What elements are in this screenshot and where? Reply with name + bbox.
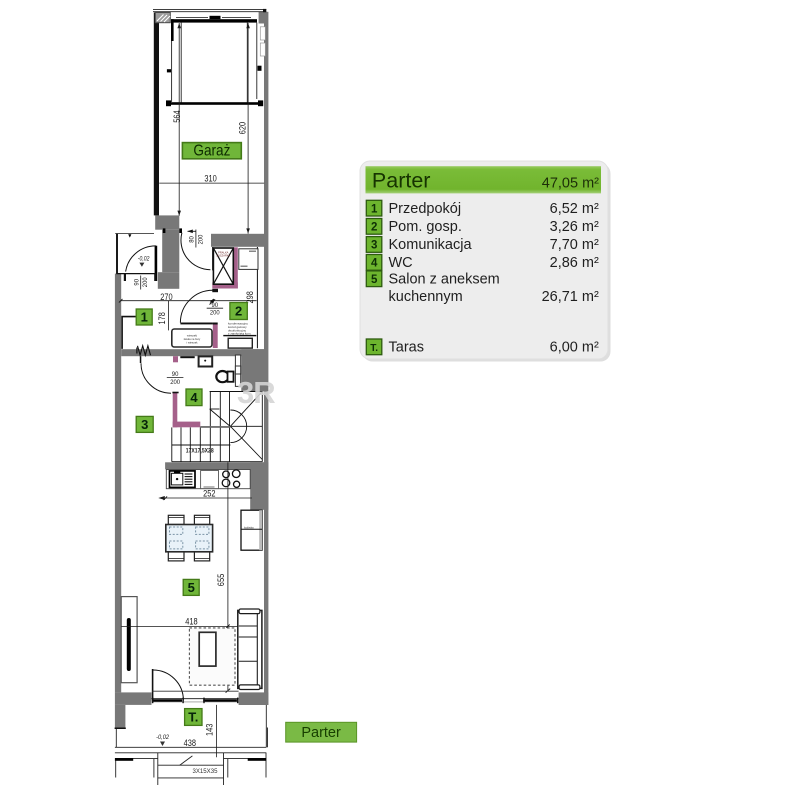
svg-text:Przedpokój: Przedpokój — [389, 201, 462, 217]
svg-text:-0,02: -0,02 — [138, 256, 150, 263]
svg-text:2: 2 — [235, 304, 242, 319]
svg-text:80: 80 — [189, 236, 196, 243]
svg-text:2,86 m²: 2,86 m² — [550, 255, 599, 271]
svg-text:620: 620 — [238, 122, 248, 134]
svg-text:200: 200 — [210, 310, 220, 317]
svg-text:298: 298 — [245, 291, 255, 303]
svg-text:270: 270 — [160, 292, 172, 302]
svg-text:3: 3 — [141, 417, 148, 432]
svg-text:655: 655 — [216, 574, 226, 586]
svg-text:90: 90 — [172, 371, 179, 378]
svg-text:Parter: Parter — [301, 725, 341, 741]
svg-text:200: 200 — [170, 379, 180, 386]
svg-text:418: 418 — [185, 617, 197, 627]
svg-text:178: 178 — [157, 312, 167, 324]
svg-text:26,71 m²: 26,71 m² — [542, 289, 599, 305]
svg-text:438: 438 — [184, 738, 196, 748]
svg-text:252: 252 — [203, 488, 215, 498]
svg-text:6,00 m²: 6,00 m² — [550, 339, 599, 355]
svg-text:Pom. gosp.: Pom. gosp. — [389, 219, 462, 235]
svg-text:4: 4 — [371, 258, 378, 270]
svg-text:1: 1 — [141, 310, 148, 325]
svg-text:T.: T. — [188, 710, 198, 725]
svg-text:T.: T. — [370, 343, 378, 354]
svg-text:i wieszak: i wieszak — [187, 341, 199, 345]
svg-text:90: 90 — [134, 279, 141, 286]
svg-text:Garaż: Garaż — [193, 143, 230, 160]
svg-text:200: 200 — [197, 234, 204, 244]
svg-text:7,70 m²: 7,70 m² — [550, 237, 599, 253]
svg-text:Komunikacja: Komunikacja — [389, 237, 473, 253]
svg-text:47,05 m²: 47,05 m² — [542, 175, 599, 191]
svg-text:lodówka: lodówka — [244, 525, 254, 529]
svg-text:Salon z aneksem: Salon z aneksem — [389, 271, 500, 287]
svg-text:wieszaki: wieszaki — [187, 334, 198, 338]
svg-text:564: 564 — [172, 110, 182, 122]
svg-text:3,26 m²: 3,26 m² — [550, 219, 599, 235]
svg-text:6,52 m²: 6,52 m² — [550, 201, 599, 217]
svg-text:3X15X35: 3X15X35 — [193, 769, 219, 775]
svg-text:kuchennym: kuchennym — [389, 289, 463, 305]
svg-text:310: 310 — [204, 174, 216, 184]
svg-text:SUSZARKA: SUSZARKA — [216, 254, 230, 258]
svg-text:-0,02: -0,02 — [156, 734, 169, 741]
svg-text:4: 4 — [190, 390, 198, 405]
svg-text:17X17,5X28: 17X17,5X28 — [186, 448, 214, 455]
svg-text:ławka na buty: ławka na buty — [184, 337, 201, 341]
svg-text:1: 1 — [371, 203, 378, 215]
svg-text:Taras: Taras — [389, 339, 424, 355]
svg-text:200: 200 — [142, 277, 149, 287]
svg-text:2: 2 — [371, 222, 377, 234]
svg-text:3R: 3R — [237, 375, 275, 410]
svg-text:143: 143 — [204, 724, 214, 736]
svg-text:5: 5 — [371, 274, 378, 286]
svg-text:WC: WC — [389, 255, 413, 271]
svg-text:Parter: Parter — [372, 168, 431, 192]
svg-text:3: 3 — [371, 240, 377, 252]
svg-text:5: 5 — [188, 580, 195, 595]
